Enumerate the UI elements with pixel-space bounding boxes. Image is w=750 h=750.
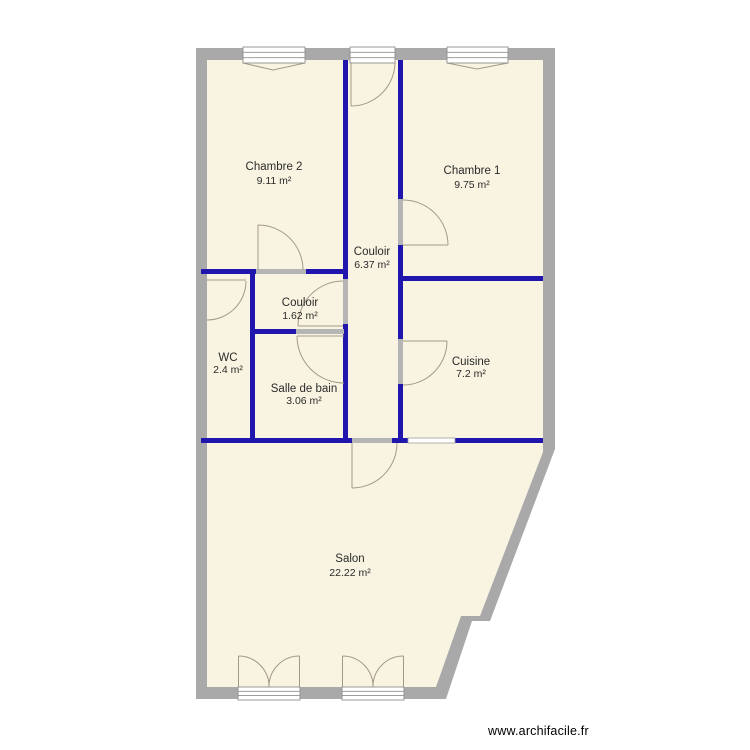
room-area-couloir[interactable] [348, 60, 398, 438]
floor-plan-canvas: Chambre 2 9.11 m² Chambre 1 9.75 m² Coul… [0, 0, 750, 750]
wall-couloir-left [343, 60, 348, 443]
wall-wc-right [250, 269, 255, 443]
room-area-wc[interactable] [207, 274, 250, 438]
watermark-link[interactable]: www.archifacile.fr [488, 724, 648, 738]
window-salon-right-icon [342, 687, 404, 700]
room-area-chambre-2[interactable] [207, 60, 342, 269]
wall-couloir-right [398, 60, 403, 443]
passage-opening-cuisine-salon [408, 438, 455, 443]
door-frame-salon [352, 438, 392, 443]
window-salon-left-icon [238, 687, 300, 700]
door-frame-couloir2 [343, 279, 348, 324]
room-area-cuisine[interactable] [403, 281, 543, 438]
door-frame-chambre2 [256, 269, 306, 274]
floor-plan-page: Chambre 2 9.11 m² Chambre 1 9.75 m² Coul… [0, 0, 750, 750]
room-area-couloir-2[interactable] [255, 274, 343, 329]
room-area-salon[interactable] [207, 443, 543, 687]
door-frame-sdb [296, 329, 344, 334]
room-area-chambre-1[interactable] [403, 60, 543, 276]
wall-cuisine-top [398, 276, 543, 281]
door-frame-chambre1 [398, 199, 403, 245]
room-area-salle-de-bain[interactable] [255, 334, 343, 438]
door-frame-cuisine [398, 339, 403, 384]
